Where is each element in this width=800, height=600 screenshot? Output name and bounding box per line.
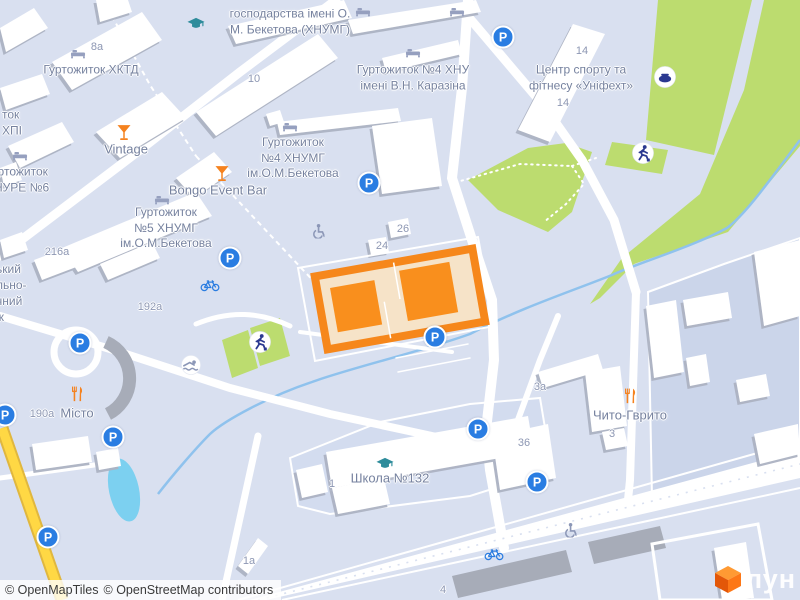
- lun-logo[interactable]: лун: [714, 564, 796, 594]
- map-label-dorm4-knu: Гуртожиток №4 ХНУімені В.Н. Каразіна: [357, 63, 469, 94]
- bicycle-icon: [201, 278, 220, 292]
- restaurant-icon: [624, 388, 637, 404]
- map-label-chyto: Чито-Гврито: [593, 407, 667, 423]
- parking-icon: P: [526, 471, 549, 494]
- soccer-pitch-icon: [632, 142, 655, 165]
- bar-icon: [216, 166, 229, 183]
- map-label-university: господарства імені О.М. Бекетова (ХНУМГ): [230, 7, 351, 38]
- soccer-pitch-icon: [249, 331, 272, 354]
- parking-icon: P: [219, 247, 242, 270]
- map-label-misto: Місто: [60, 405, 93, 421]
- wheelchair-icon: [312, 224, 325, 239]
- house-number: 1: [329, 478, 335, 490]
- map-label-dorm4-hnumg: Гуртожиток№4 ХНУМГім.О.М.Бекетова: [247, 135, 338, 182]
- map-canvas[interactable]: P P P P P P P P P P господарства імені О…: [0, 0, 800, 600]
- hostel-bed-icon: [13, 149, 28, 161]
- house-number: 14: [576, 45, 588, 57]
- house-number: 36: [518, 437, 530, 449]
- house-number: 3а: [534, 381, 546, 393]
- parking-icon: P: [424, 326, 447, 349]
- parking-icon: P: [69, 332, 92, 355]
- map-label-unifeht: Центр спорту тафітнесу «Уніфехт»: [529, 63, 633, 94]
- map-label-school: Школа №132: [351, 470, 430, 486]
- house-number: 10: [248, 73, 260, 85]
- house-number: 8а: [91, 41, 103, 53]
- map-label-vintage: Vintage: [104, 141, 148, 157]
- house-number: 26: [397, 223, 409, 235]
- parking-icon: P: [358, 172, 381, 195]
- sports-centre-icon: [654, 66, 677, 89]
- hostel-bed-icon: [450, 5, 465, 17]
- hostel-bed-icon: [71, 47, 86, 59]
- lun-logo-text: лун: [745, 564, 796, 594]
- parking-icon: P: [37, 526, 60, 549]
- bicycle-icon: [485, 547, 504, 561]
- lun-cube-icon: [714, 565, 742, 593]
- parking-icon: P: [467, 418, 490, 441]
- restaurant-icon: [71, 386, 84, 402]
- attribution-openmaptiles-link[interactable]: © OpenMapTiles: [5, 583, 99, 597]
- map-label-hnure: ГуртожитокХНУРЕ №6: [0, 165, 49, 196]
- house-number: 24: [376, 240, 388, 252]
- university-icon: [188, 18, 205, 31]
- house-number: 3: [609, 428, 615, 440]
- map-label-bongo: Bongo Event Bar: [169, 182, 267, 198]
- attribution-bar: © OpenMapTiles © OpenStreetMap contribut…: [0, 580, 281, 600]
- house-number: 14: [557, 97, 569, 109]
- map-label-hktd: Гуртожиток ХКТД: [43, 62, 138, 78]
- map-label-hpi: токХПІ: [2, 108, 22, 139]
- house-number: 4: [440, 584, 446, 596]
- house-number: 192а: [138, 301, 162, 313]
- map-label-dorm5-hnumg: Гуртожиток№5 ХНУМГім.О.М.Бекетова: [120, 205, 211, 252]
- hostel-bed-icon: [155, 193, 170, 205]
- school-icon: [377, 458, 394, 471]
- house-number: 216а: [45, 246, 69, 258]
- hostel-bed-icon: [406, 46, 421, 58]
- wheelchair-icon: [564, 523, 577, 538]
- bar-icon: [118, 125, 131, 142]
- house-number: 1а: [243, 555, 255, 567]
- hostel-bed-icon: [356, 5, 371, 17]
- parking-icon: P: [492, 26, 515, 49]
- attribution-osm-link[interactable]: © OpenStreetMap contributors: [104, 583, 274, 597]
- parking-icon: P: [102, 426, 125, 449]
- house-number: 190а: [30, 408, 54, 420]
- hostel-bed-icon: [283, 120, 298, 132]
- map-label-fragment: ькийльно- чнийж: [0, 261, 27, 325]
- swimming-icon: [181, 355, 202, 376]
